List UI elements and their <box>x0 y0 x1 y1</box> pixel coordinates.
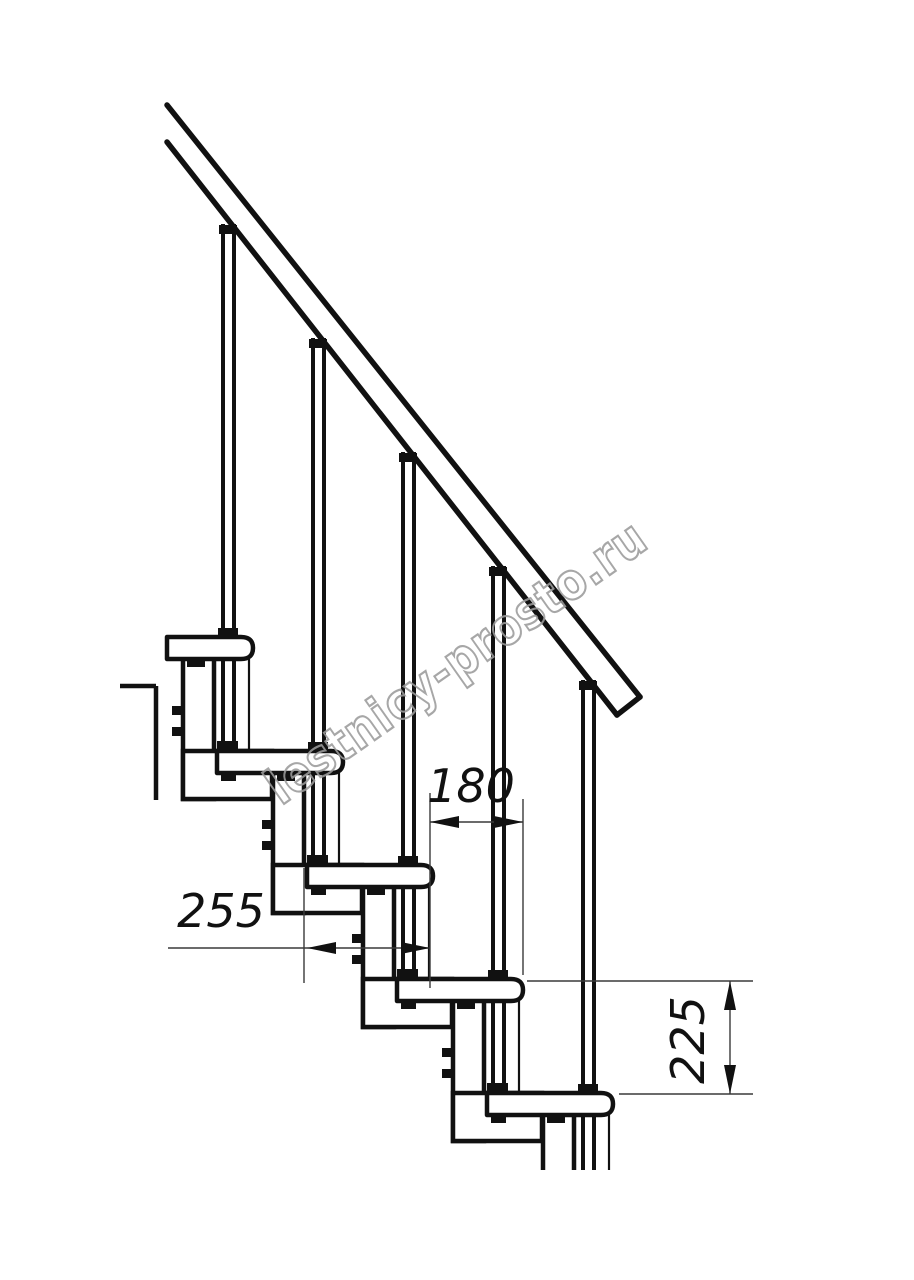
side-bolt <box>352 955 365 964</box>
strut-landing-collar <box>307 855 328 865</box>
baluster-5 <box>583 680 594 1093</box>
technical-drawing-page: 180 255 225 lestnicy-prosto.ru <box>0 0 914 1280</box>
dimension-step-run: 180 <box>427 759 523 988</box>
upper-module-remnant <box>120 686 156 800</box>
module-top-bolt <box>367 887 385 895</box>
tread-3 <box>307 865 433 887</box>
module-top-bolt <box>457 1001 475 1009</box>
side-bolt <box>172 706 185 715</box>
dimension-label-225: 225 <box>661 996 715 1084</box>
tread-4 <box>397 979 523 1001</box>
module-strut <box>493 1001 504 1093</box>
strut-landing-collar <box>217 741 238 751</box>
arrowhead-left <box>307 942 336 954</box>
through-bolt <box>221 773 236 781</box>
side-bolt <box>442 1069 455 1078</box>
arrowhead-up <box>724 981 736 1010</box>
module-column-box-open <box>543 1115 574 1170</box>
baluster-2 <box>313 338 324 751</box>
module-strut <box>223 659 234 751</box>
baluster-1 <box>223 224 234 637</box>
dimension-label-180: 180 <box>427 759 515 813</box>
arrowhead-down <box>724 1065 736 1094</box>
side-bolt <box>262 841 275 850</box>
dimension-step-rise: 225 <box>527 981 753 1094</box>
module-top-bolt <box>547 1115 565 1123</box>
strut-landing-collar <box>487 1083 508 1093</box>
tread-5 <box>487 1093 613 1115</box>
through-bolt <box>401 1001 416 1009</box>
module-top-bolt <box>187 659 205 667</box>
arrowhead-right <box>494 816 523 828</box>
through-bolt <box>491 1115 506 1123</box>
stair-side-view-drawing: 180 255 225 lestnicy-prosto.ru <box>0 0 914 1280</box>
tread-1 <box>167 637 253 659</box>
strut-landing-collar <box>397 969 418 979</box>
side-bolt <box>172 727 185 736</box>
side-bolt <box>262 820 275 829</box>
side-bolt <box>352 934 365 943</box>
module-strut <box>583 1115 594 1170</box>
balusters <box>219 224 597 1093</box>
through-bolt <box>311 887 326 895</box>
arrowhead-left <box>430 816 459 828</box>
dimension-label-255: 255 <box>177 884 265 938</box>
module-strut <box>403 887 414 979</box>
handrail-end-cap <box>617 697 640 715</box>
side-bolt <box>442 1048 455 1057</box>
